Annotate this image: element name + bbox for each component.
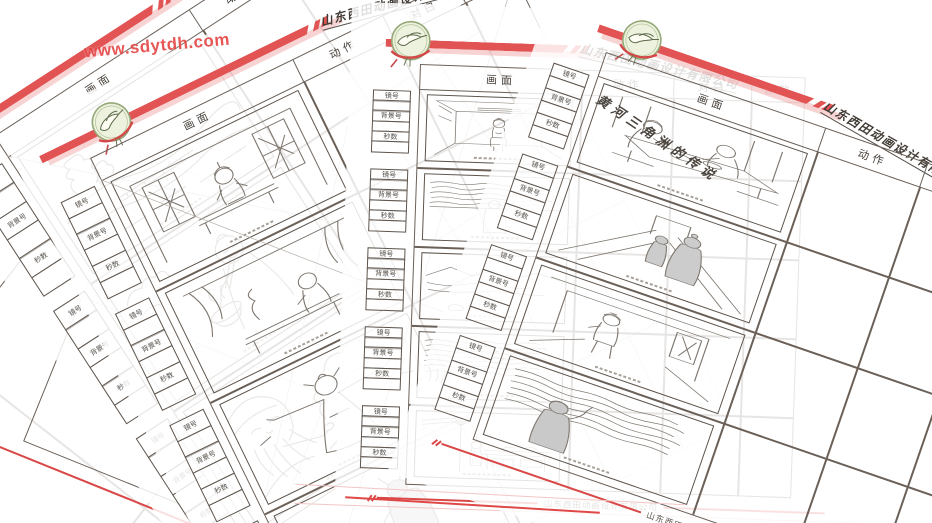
label-box-spacer: [363, 377, 401, 390]
label-box-spacer: [371, 140, 409, 153]
column-divider: [876, 214, 932, 523]
row-label-stack: 镜号背景号秒数: [371, 89, 411, 152]
row-label-stack: 镜号背景号秒数: [363, 326, 403, 389]
row-label-stack: 镜号背景号秒数: [368, 168, 408, 231]
label-box-spacer: [365, 298, 403, 311]
row-label-stack: 镜号背景号秒数: [365, 247, 405, 310]
column-divider: [795, 186, 921, 523]
crane-logo-icon: [387, 19, 435, 71]
crane-logo: [387, 19, 435, 71]
label-box-spacer: [368, 219, 406, 232]
storyboard-collage: www.sdytdh.com 山东西田动画设计有限公司画面动作对白音效镜号背景号…: [0, 0, 932, 523]
